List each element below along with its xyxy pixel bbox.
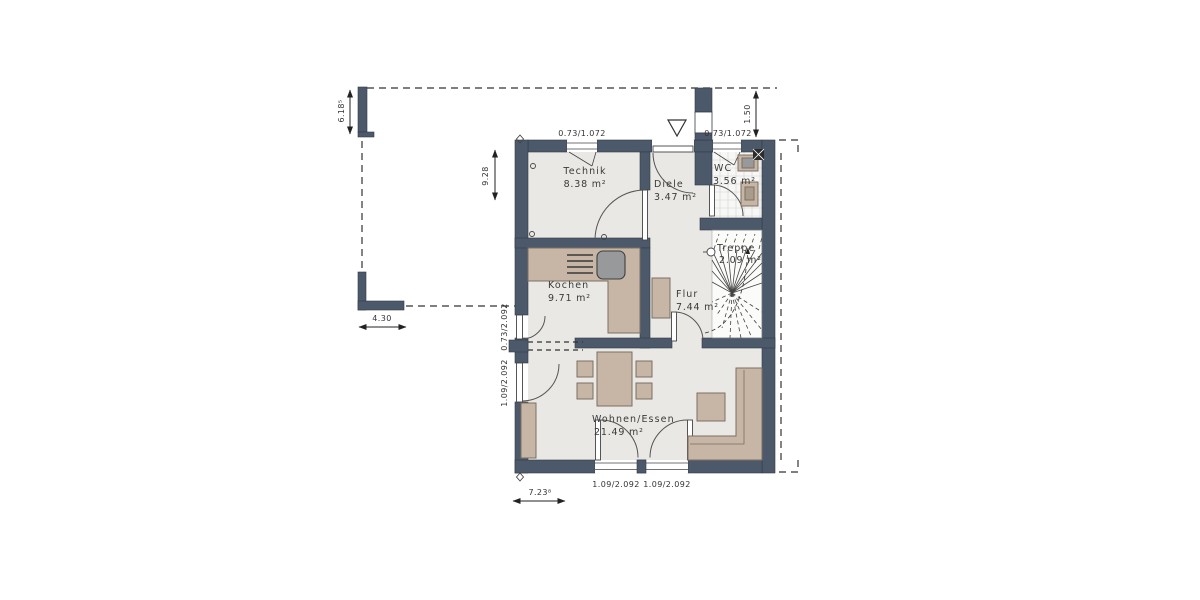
neighbor-outline-hook-top — [779, 140, 798, 153]
room-label-wohnen: Wohnen/Essen — [592, 414, 675, 425]
chimney-upper — [695, 88, 712, 112]
corner-diamond-bottom — [517, 473, 524, 481]
floor-plan-canvas: Technik 8.38 m² Diele 3.47 m² WC 3.56 m²… — [0, 0, 1200, 600]
stair-start-marker — [707, 248, 715, 256]
dining-chair — [577, 383, 593, 399]
garden-walls — [358, 87, 404, 310]
dining-chair — [636, 361, 652, 377]
dim-garden-wall: 4.30 — [372, 314, 391, 323]
room-label-technik: Technik — [562, 166, 606, 177]
wall-kochen-flur — [640, 248, 650, 348]
dim-door-wohnen-side: 1.09/2.092 — [500, 359, 509, 406]
garden-wall-top-left-foot — [358, 132, 374, 137]
wall-bottom-1 — [515, 460, 595, 473]
wall-top-2 — [597, 140, 652, 152]
dim-window-wc: 0.73/1.072 — [704, 129, 751, 138]
entrance-triangle-marker — [668, 120, 686, 136]
dining-chair — [577, 361, 593, 377]
wall-technik-kochen — [515, 238, 650, 248]
door-flur-leaf — [672, 312, 677, 341]
floor-plan-drawing: Technik 8.38 m² Diele 3.47 m² WC 3.56 m²… — [0, 0, 1200, 600]
door-wc-leaf — [710, 185, 715, 216]
coffee-table — [697, 393, 725, 421]
sideboard — [521, 403, 536, 458]
window-wc-opening — [713, 140, 741, 152]
garden-wall-l-horizontal — [358, 301, 404, 310]
dining-chair — [636, 383, 652, 399]
wall-bottom-2 — [688, 460, 762, 473]
room-area-diele: 3.47 m² — [654, 192, 697, 203]
window-technik-opening — [567, 140, 597, 152]
wall-treppe-wohnen — [702, 338, 775, 348]
wall-left-pier — [509, 340, 528, 352]
room-area-technik: 8.38 m² — [564, 179, 607, 190]
door-kochen-leaf — [517, 315, 523, 339]
dim-window-technik: 0.73/1.072 — [558, 129, 605, 138]
dim-house-depth: 9.28 — [481, 166, 490, 185]
wall-wc-treppe — [700, 218, 762, 230]
room-area-wohnen: 21.49 m² — [594, 427, 644, 438]
neighbor-outline-hook-bottom — [779, 459, 798, 472]
room-area-flur: 7.44 m² — [676, 302, 719, 313]
wall-diele-wc — [695, 152, 712, 185]
wall-technik-diele — [640, 152, 650, 190]
wall-right — [762, 140, 775, 473]
dim-setback-right: 1.50 — [743, 104, 752, 123]
dim-terrace-door-right: 1.09/2.092 — [643, 480, 690, 489]
vent-shaft-icon — [753, 149, 764, 160]
wall-top-1 — [528, 140, 567, 152]
room-area-treppe: 2.09 m² — [719, 255, 762, 266]
garden-wall-top-left — [358, 87, 367, 132]
kitchen-sink-icon — [597, 251, 625, 279]
dim-terrace-door-left: 1.09/2.092 — [592, 480, 639, 489]
wc-toilet-seat — [745, 187, 754, 200]
room-area-wc: 3.56 m² — [713, 176, 756, 187]
dim-door-kochen: 0.73/2.092 — [500, 303, 509, 350]
dim-site-left: 6.18⁵ — [337, 99, 346, 122]
room-label-kochen: Kochen — [548, 280, 589, 291]
wall-top-3 — [694, 140, 713, 152]
terrace-center-post — [637, 460, 646, 473]
entrance-door-leaf — [653, 146, 693, 152]
wc-sink-basin — [742, 158, 754, 168]
room-label-flur: Flur — [676, 289, 698, 300]
wall-left-1 — [515, 140, 528, 315]
room-label-treppe: Treppe — [716, 243, 755, 254]
flur-wardrobe — [652, 278, 670, 318]
door-wohnen-leaf — [517, 363, 523, 402]
room-area-kochen: 9.71 m² — [548, 293, 591, 304]
door-technik-leaf — [643, 190, 648, 240]
dim-house-width: 7.23⁸ — [528, 488, 551, 497]
room-label-wc: WC — [714, 163, 732, 174]
wall-kochen-wohnen — [575, 338, 672, 348]
room-label-diele: Diele — [654, 179, 684, 190]
terrace-door-leaf-left — [596, 420, 601, 460]
dining-table — [597, 352, 632, 406]
